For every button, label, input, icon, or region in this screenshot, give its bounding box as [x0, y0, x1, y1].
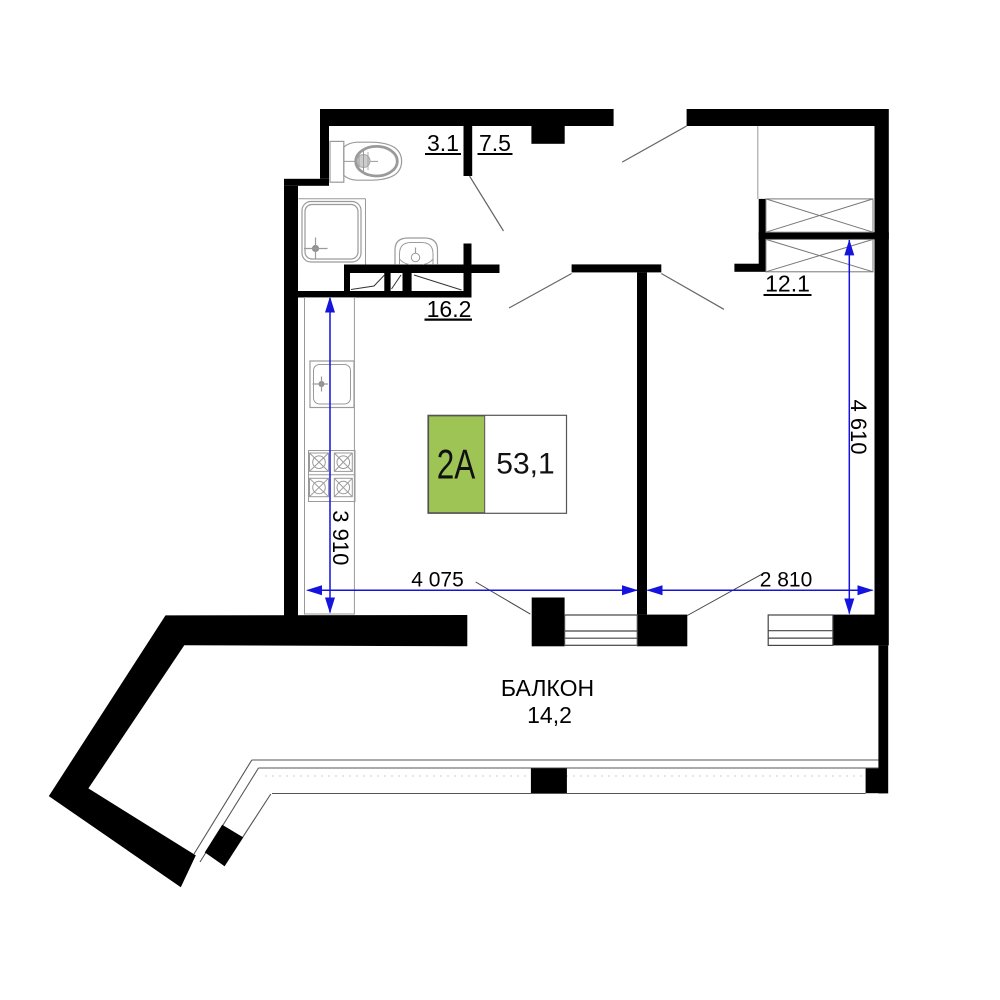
svg-text:53,1: 53,1	[496, 448, 554, 481]
svg-text:12.1: 12.1	[765, 271, 810, 297]
svg-text:4 610: 4 610	[846, 399, 871, 454]
svg-text:3 910: 3 910	[328, 510, 353, 565]
svg-text:7.5: 7.5	[479, 130, 511, 156]
svg-text:14,2: 14,2	[527, 702, 572, 728]
svg-text:2 810: 2 810	[760, 569, 813, 592]
svg-text:2A: 2A	[437, 441, 476, 488]
svg-text:БАЛКОН: БАЛКОН	[501, 675, 594, 701]
svg-text:3.1: 3.1	[427, 130, 459, 156]
svg-text:16.2: 16.2	[427, 296, 472, 322]
svg-text:4 075: 4 075	[411, 569, 464, 592]
